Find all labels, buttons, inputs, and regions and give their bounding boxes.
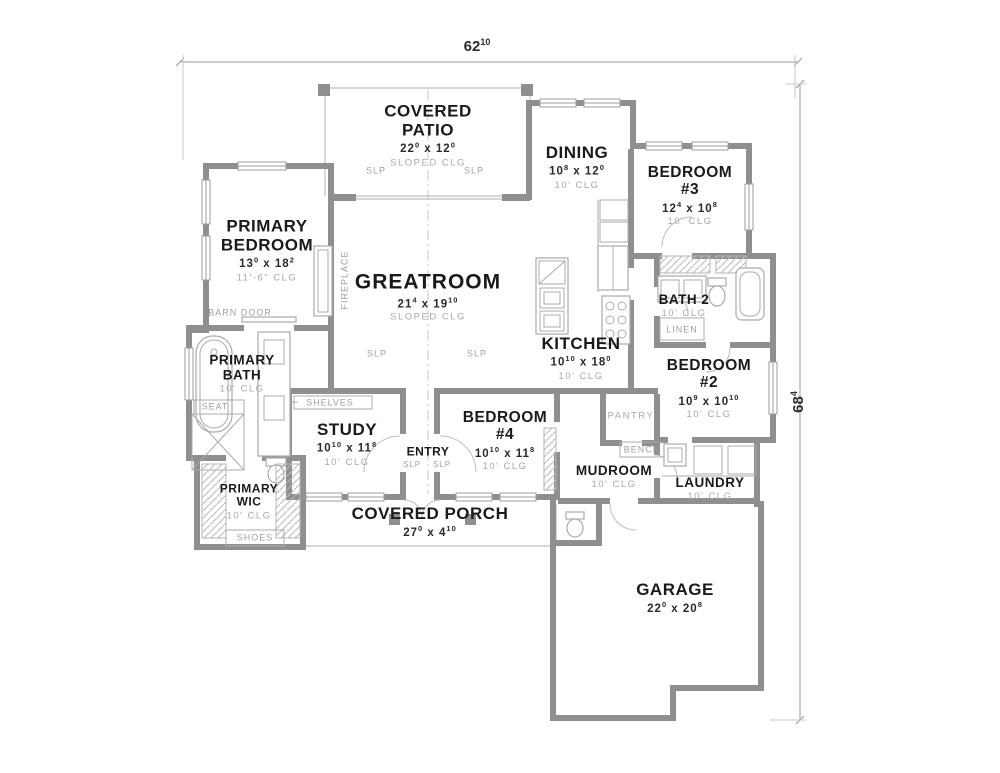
room-dim: 1010 x 118	[297, 441, 397, 456]
room-label-covered-patio: COVERED PATIO 220 x 120 SLOPED CLG	[363, 101, 493, 168]
mudroom-toilet-icon	[566, 512, 584, 537]
slope-label-patio-left: SLP	[366, 165, 386, 176]
room-label-bedroom-4: BEDROOM #4 1010 x 118 10' CLG	[457, 409, 553, 473]
room-clg: 10' CLG	[644, 217, 736, 228]
slope-label-patio-right: SLP	[464, 165, 484, 176]
room-name: PRIMARY BEDROOM	[207, 216, 327, 254]
slope-label-greatroom-right: SLP	[467, 348, 487, 359]
room-name: PANTRY	[601, 412, 661, 423]
overall-width-dimension: 6210	[464, 37, 491, 55]
room-clg: 10' CLG	[297, 458, 397, 469]
room-name: BATH 2	[644, 292, 724, 307]
room-name: BEDROOM #3	[644, 164, 736, 199]
room-name: BEDROOM #4	[457, 409, 553, 444]
room-name: GREATROOM	[318, 271, 538, 295]
room-label-garage: GARAGE 220 x 208	[595, 580, 755, 616]
room-label-dining: DINING 108 x 120 10' CLG	[517, 143, 637, 191]
room-clg: 10' CLG	[661, 410, 757, 421]
fireplace-label: FIREPLACE	[339, 250, 350, 309]
room-label-bedroom-3: BEDROOM #3 124 x 108 10' CLG	[644, 164, 736, 228]
room-dim: 270 x 410	[320, 525, 540, 540]
room-clg: 10' CLG	[521, 372, 641, 383]
room-label-primary-bedroom: PRIMARY BEDROOM 130 x 182 11'-6" CLG	[207, 216, 327, 283]
room-name: MUDROOM	[559, 463, 669, 478]
room-clg: SLOPED CLG	[318, 313, 538, 324]
slope-label-entry-left: SLP	[403, 460, 421, 470]
room-dim: 220 x 208	[595, 601, 755, 616]
room-clg: 10' CLG	[517, 181, 637, 192]
room-name: GARAGE	[595, 580, 755, 599]
room-name: COVERED PATIO	[363, 101, 493, 139]
room-clg: 10' CLG	[655, 492, 765, 503]
room-dim: 124 x 108	[644, 201, 736, 216]
room-label-entry: ENTRY	[398, 445, 458, 458]
room-name: COVERED PORCH	[320, 504, 540, 523]
plan-linework	[0, 0, 1000, 773]
slope-label-entry-right: SLP	[433, 460, 451, 470]
room-clg: 10' CLG	[559, 480, 669, 491]
room-label-primary-wic: PRIMARY WIC 10' CLG	[214, 482, 284, 522]
room-name: DINING	[517, 143, 637, 162]
room-dim: 1010 x 118	[457, 446, 553, 461]
room-name: LAUNDRY	[655, 475, 765, 490]
room-label-bath-2: BATH 2 10' CLG	[644, 292, 724, 320]
room-name: KITCHEN	[521, 334, 641, 353]
room-clg: 11'-6" CLG	[207, 273, 327, 284]
room-name: STUDY	[297, 420, 397, 439]
seat-label: SEAT	[202, 401, 229, 412]
room-label-pantry: PANTRY	[601, 412, 661, 423]
room-dim: 130 x 182	[207, 256, 327, 271]
linen-label: LINEN	[666, 324, 698, 335]
floor-plan-page: COVERED PATIO 220 x 120 SLOPED CLG DININ…	[0, 0, 1000, 773]
room-dim: 220 x 120	[363, 141, 493, 156]
room-label-covered-porch: COVERED PORCH 270 x 410	[320, 504, 540, 540]
room-label-kitchen: KITCHEN 1010 x 180 10' CLG	[521, 334, 641, 382]
slope-label-greatroom-left: SLP	[367, 348, 387, 359]
room-label-laundry: LAUNDRY 10' CLG	[655, 475, 765, 503]
room-clg: 10' CLG	[457, 462, 553, 473]
room-clg: 10' CLG	[214, 511, 284, 522]
room-dim: 214 x 1910	[318, 296, 538, 311]
room-dim: 1010 x 180	[521, 355, 641, 370]
shelves-label: SHELVES	[306, 397, 354, 408]
room-label-bedroom-2: BEDROOM #2 109 x 1010 10' CLG	[661, 357, 757, 421]
room-clg: 10' CLG	[202, 385, 282, 396]
room-name: BEDROOM #2	[661, 357, 757, 392]
room-label-study: STUDY 1010 x 118 10' CLG	[297, 420, 397, 468]
room-name: ENTRY	[398, 445, 458, 458]
kitchen-fixtures	[536, 200, 630, 344]
bench-label: BENCH	[624, 444, 661, 455]
room-label-primary-bath: PRIMARY BATH 10' CLG	[202, 353, 282, 396]
shoes-label: SHOES	[237, 532, 274, 543]
room-name: PRIMARY BATH	[202, 353, 282, 383]
room-dim: 108 x 120	[517, 164, 637, 179]
room-label-mudroom: MUDROOM 10' CLG	[559, 463, 669, 491]
room-name: PRIMARY WIC	[214, 482, 284, 509]
room-dim: 109 x 1010	[661, 394, 757, 409]
room-label-greatroom: GREATROOM 214 x 1910 SLOPED CLG	[318, 271, 538, 324]
patio-posts	[318, 84, 533, 96]
room-clg: 10' CLG	[644, 309, 724, 320]
overall-height-dimension: 684	[789, 391, 807, 413]
barn-door-label: BARN DOOR	[208, 307, 272, 318]
